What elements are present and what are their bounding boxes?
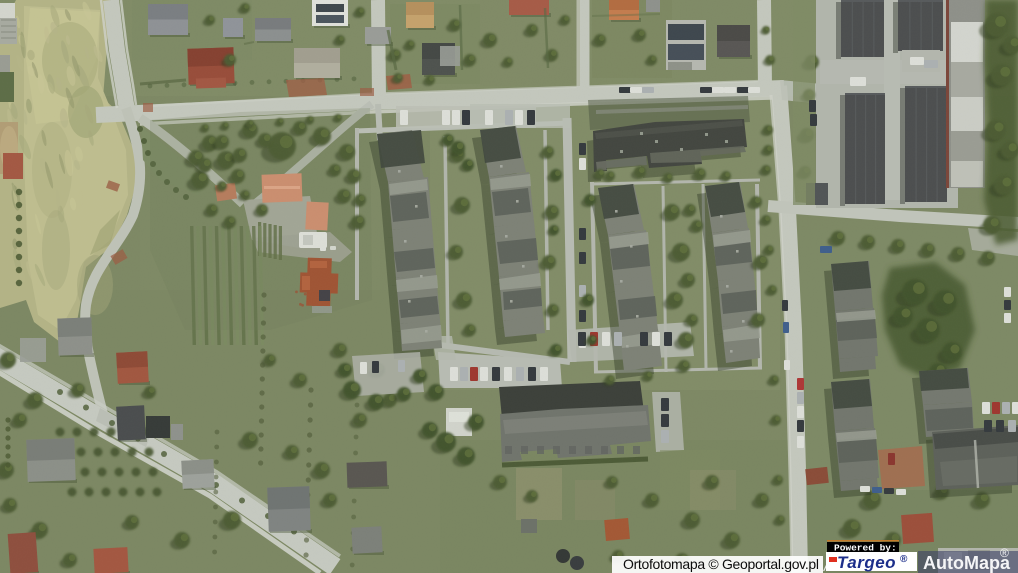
svg-text:AutoMapa: AutoMapa [923,553,1011,573]
svg-text:Ortofotomapa © Geoportal.gov.p: Ortofotomapa © Geoportal.gov.pl [623,556,819,572]
svg-text:Targeo: Targeo [837,553,896,572]
svg-text:Powered by:: Powered by: [834,543,897,554]
svg-text:®: ® [1000,546,1009,560]
svg-text:®: ® [900,554,908,565]
